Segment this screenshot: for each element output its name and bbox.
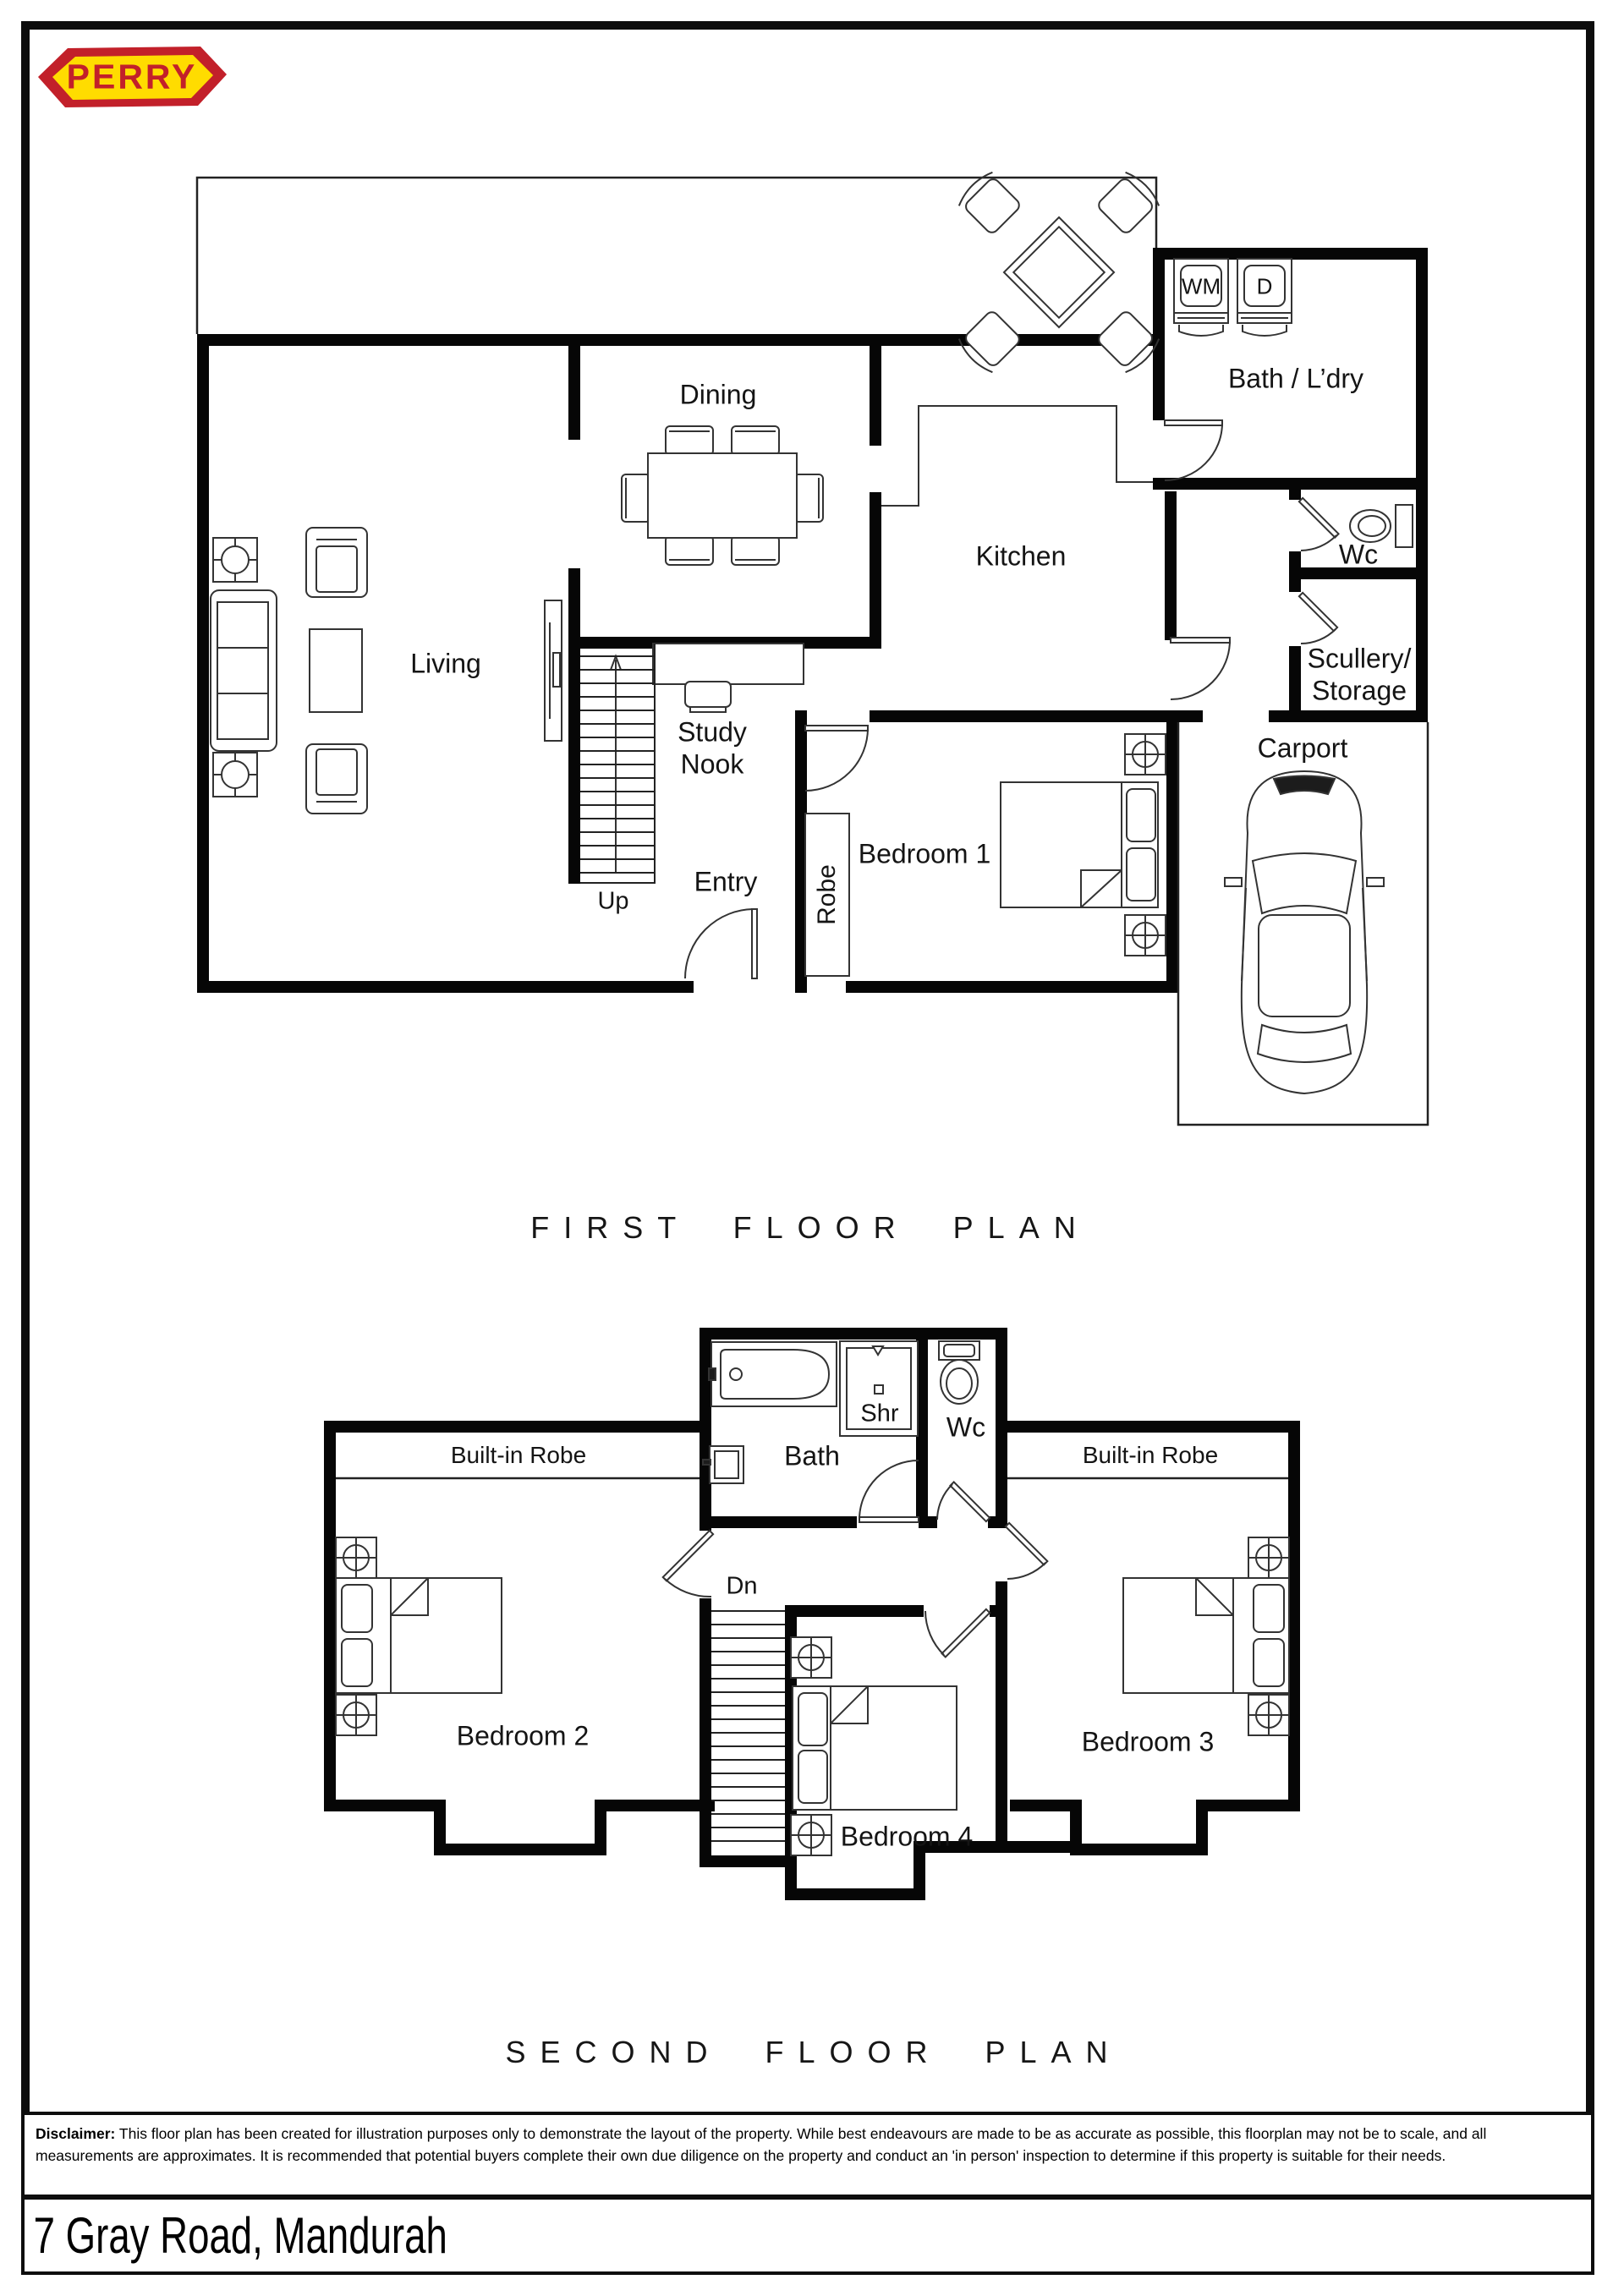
room-label-study-line1: Study [678,717,747,748]
bedroom3-bed [1123,1537,1289,1735]
staircase-first-floor [580,644,656,884]
address-bar: 7 Gray Road, Mandurah [21,2196,1594,2275]
stairs-dn-label: Dn [726,1573,757,1601]
robe-label: Robe [813,864,842,925]
bedroom2-bed [336,1537,502,1735]
room-label-bath: Bath [784,1441,840,1472]
disclaimer-label: Disclaimer: [36,2125,115,2142]
property-address: 7 Gray Road, Mandurah [25,2206,447,2265]
room-label-wc: Wc [1339,540,1378,571]
room-label-study-line2: Nook [681,749,744,781]
disclaimer-text: This floor plan has been created for ill… [36,2125,1486,2164]
room-label-shr: Shr [860,1400,898,1428]
bedroom1-bed [1001,734,1166,956]
room-label-dining: Dining [680,380,757,411]
room-label-bedroom4: Bedroom 4 [841,1822,974,1853]
room-label-bedroom3: Bedroom 3 [1082,1727,1215,1758]
room-label-scullery-line1: Scullery/ [1308,644,1412,675]
room-label-scullery-line2: Storage [1312,676,1407,707]
room-label-bath-ldry: Bath / L’dry [1228,364,1363,395]
room-label-entry: Entry [694,867,758,898]
floor-plan-drawing [0,0,1624,2296]
staircase-second-floor [711,1598,785,1852]
perry-logo: PERRY [67,58,198,97]
bathtub-icon [709,1342,837,1406]
room-label-bedroom2: Bedroom 2 [457,1721,590,1752]
stairs-up-label: Up [597,888,628,916]
disclaimer-box: Disclaimer: This floor plan has been cre… [21,2112,1594,2198]
built-in-robe-left-label: Built-in Robe [451,1442,586,1469]
bathroom-sink-icon [703,1446,743,1483]
living-furniture [211,528,562,814]
car-icon [1225,771,1384,1093]
first-floor-title: FIRST FLOOR PLAN [530,1210,1089,1246]
room-label-kitchen: Kitchen [976,541,1067,573]
study-nook-desk [653,644,804,712]
room-label-bedroom1: Bedroom 1 [859,839,991,870]
toilet2-icon [939,1341,979,1404]
built-in-robe-right-label: Built-in Robe [1083,1442,1218,1469]
floorplan-page: PERRY Dining Kitchen Bath / L’dry Wc Scu… [0,0,1624,2296]
dryer-label: D [1257,274,1273,300]
room-label-living: Living [410,649,481,680]
kitchen-bench [881,406,1153,506]
dining-table [622,426,823,565]
washing-machine-label: WM [1182,274,1221,300]
room-label-wc2: Wc [946,1412,985,1444]
room-label-carport: Carport [1258,733,1348,764]
second-floor-title: SECOND FLOOR PLAN [505,2035,1122,2070]
